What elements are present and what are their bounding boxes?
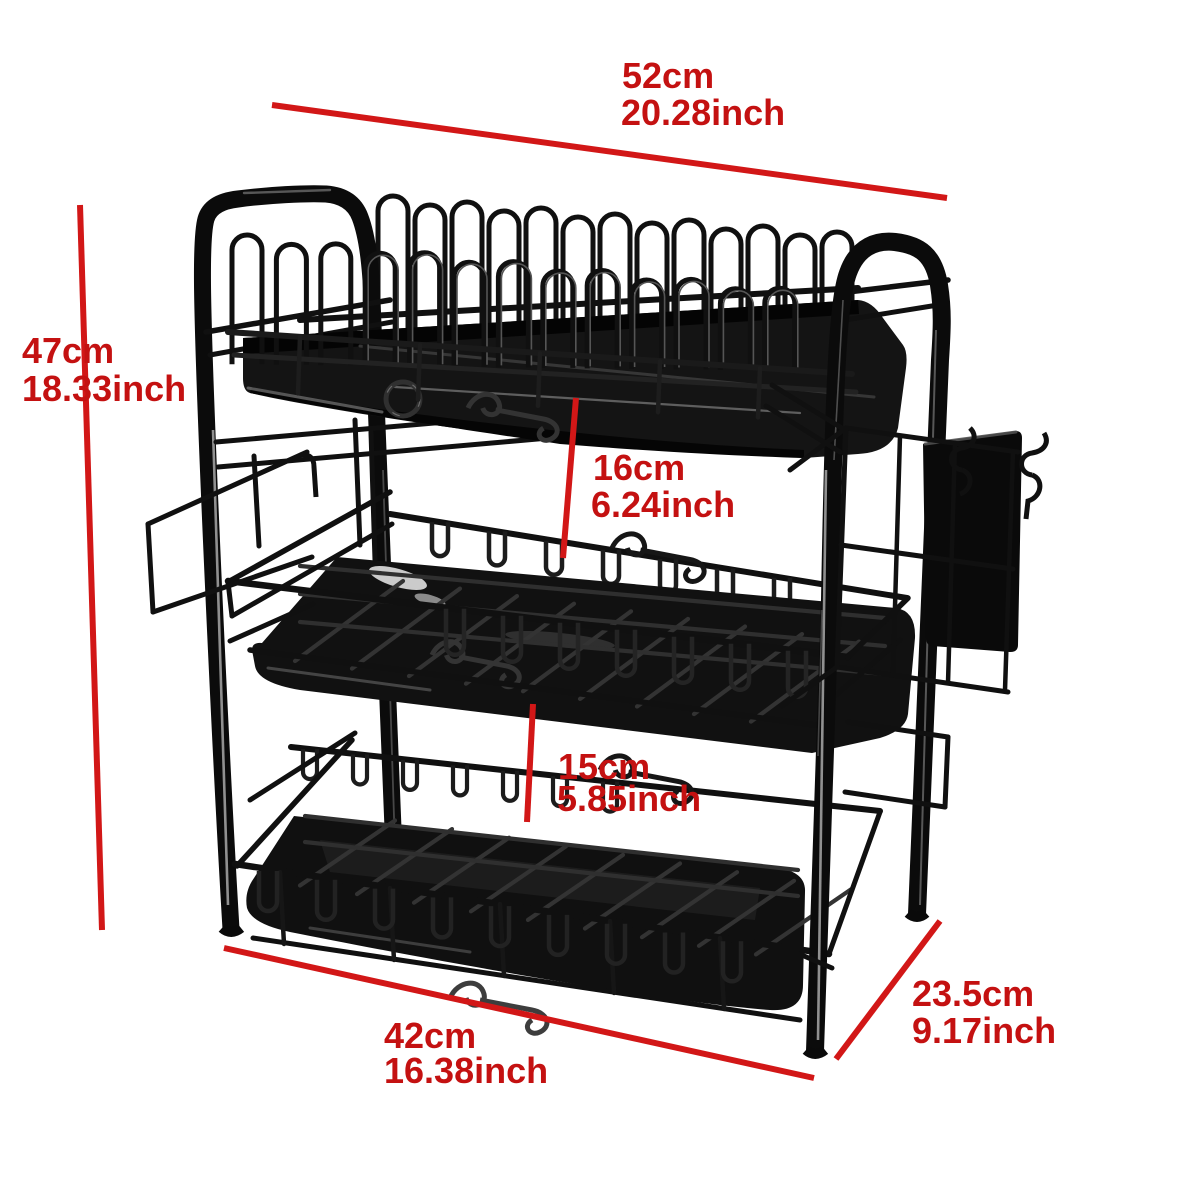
svg-text:9.17inch: 9.17inch [912,1010,1056,1051]
svg-text:6.24inch: 6.24inch [591,484,735,525]
svg-text:16.38inch: 16.38inch [384,1050,548,1091]
svg-text:52cm: 52cm [622,55,714,96]
svg-text:5.85inch: 5.85inch [557,778,701,819]
svg-text:23.5cm: 23.5cm [912,973,1034,1014]
svg-text:20.28inch: 20.28inch [621,92,785,133]
svg-text:47cm: 47cm [22,330,114,371]
svg-text:18.33inch: 18.33inch [22,368,186,409]
svg-text:16cm: 16cm [593,447,685,488]
